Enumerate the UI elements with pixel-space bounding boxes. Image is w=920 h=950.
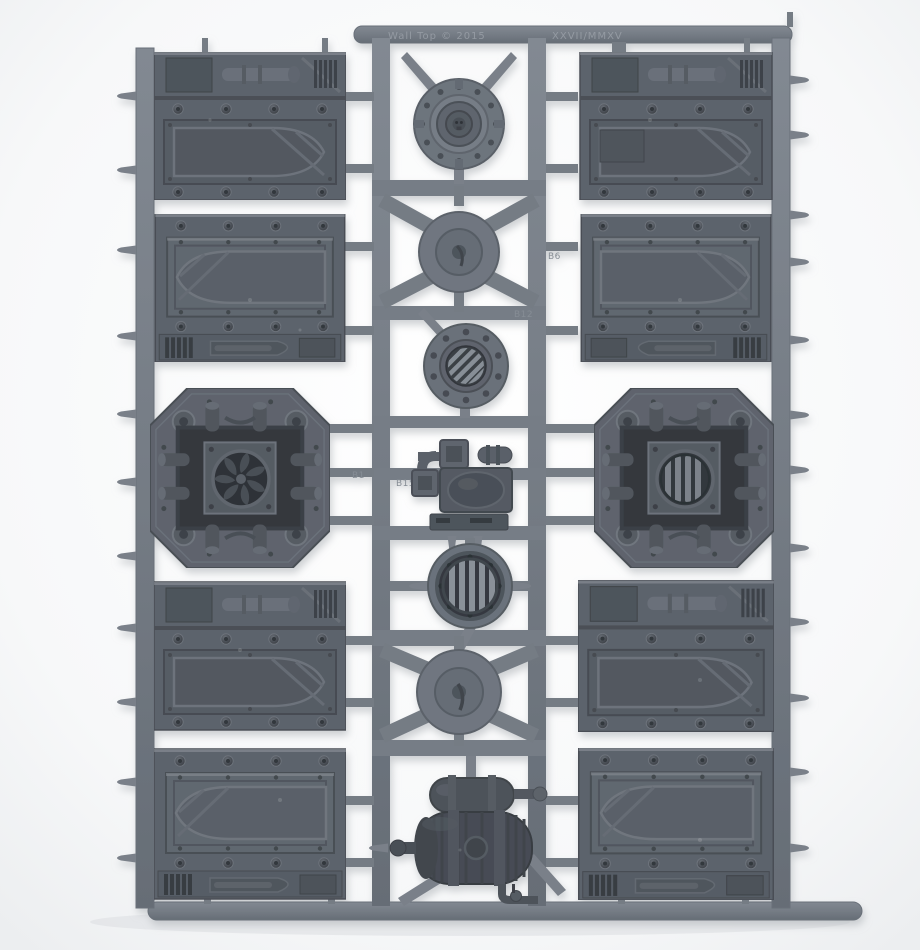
part-label-b1: B1 (352, 471, 365, 481)
cone-spike-upper (419, 212, 499, 292)
door-panel-mid-left (155, 214, 344, 362)
door-panel-mid-right (581, 214, 770, 362)
embossed-date-mark: XXVII/MMXV (552, 31, 623, 42)
door-panel-top-right-recess (600, 130, 644, 162)
skull-boss-icon (453, 118, 466, 131)
product-photo-sprue: Wall Top © 2015 XXVII/MMXV B1 B15 B6 B12 (0, 0, 920, 950)
bottom-rail (148, 902, 862, 920)
door-panel-bottom-left (154, 749, 346, 899)
door-panel-top-right (580, 52, 772, 200)
part-label-b6: B6 (548, 252, 561, 262)
fan-detail (213, 451, 269, 507)
door-panel-bottom-right (579, 748, 774, 900)
door-panel-top-left (154, 52, 346, 200)
sprue-photo-canvas: Wall Top © 2015 XXVII/MMXV B1 B15 B6 B12 (0, 0, 920, 950)
part-label-b12: B12 (514, 310, 533, 320)
door-panel-lower-right (578, 580, 774, 731)
embossed-copyright-mark: Wall Top © 2015 (388, 31, 486, 42)
door-panel-lower-left (154, 582, 346, 730)
cone-spike-lower (417, 650, 501, 734)
louvre-detail (657, 451, 713, 507)
right-rail (772, 38, 790, 908)
